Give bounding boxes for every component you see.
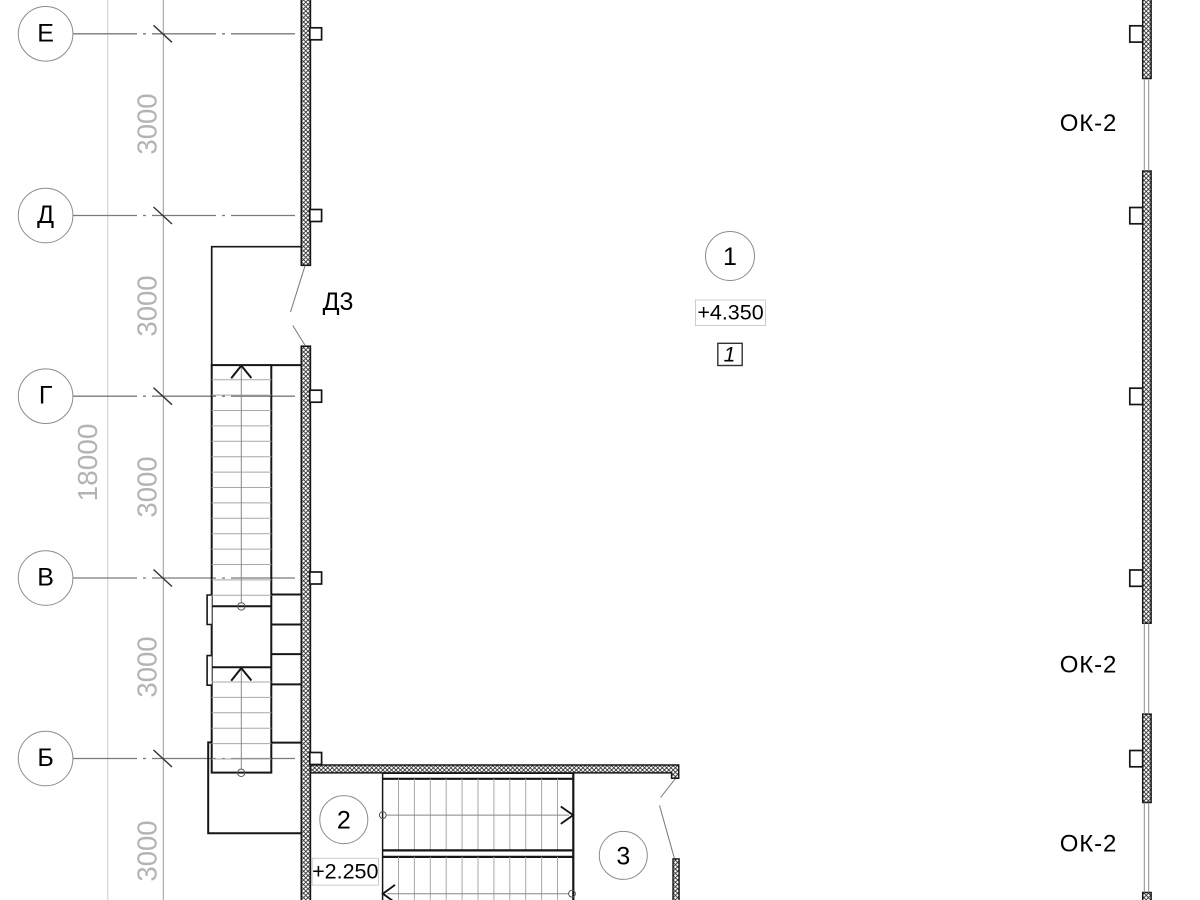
svg-text:Б: Б [37, 744, 53, 772]
svg-text:Д: Д [37, 201, 54, 229]
svg-text:2: 2 [337, 807, 351, 835]
svg-text:1: 1 [723, 243, 737, 271]
svg-text:3000: 3000 [131, 636, 162, 697]
svg-text:3000: 3000 [131, 93, 162, 154]
svg-text:В: В [37, 564, 54, 592]
svg-text:Е: Е [37, 19, 54, 47]
svg-text:18000: 18000 [72, 424, 103, 502]
svg-text:3000: 3000 [131, 456, 162, 517]
svg-text:Д3: Д3 [323, 288, 354, 316]
svg-text:3000: 3000 [131, 820, 162, 881]
svg-text:1: 1 [724, 344, 736, 367]
svg-text:ОК-2: ОК-2 [1060, 651, 1118, 678]
svg-text:Г: Г [39, 382, 53, 410]
svg-text:ОК-2: ОК-2 [1060, 831, 1118, 858]
svg-text:+2.250: +2.250 [312, 860, 378, 884]
svg-text:3000: 3000 [131, 275, 162, 336]
svg-text:3: 3 [616, 842, 630, 870]
svg-text:ОК-2: ОК-2 [1060, 110, 1118, 137]
svg-text:+4.350: +4.350 [697, 301, 763, 325]
